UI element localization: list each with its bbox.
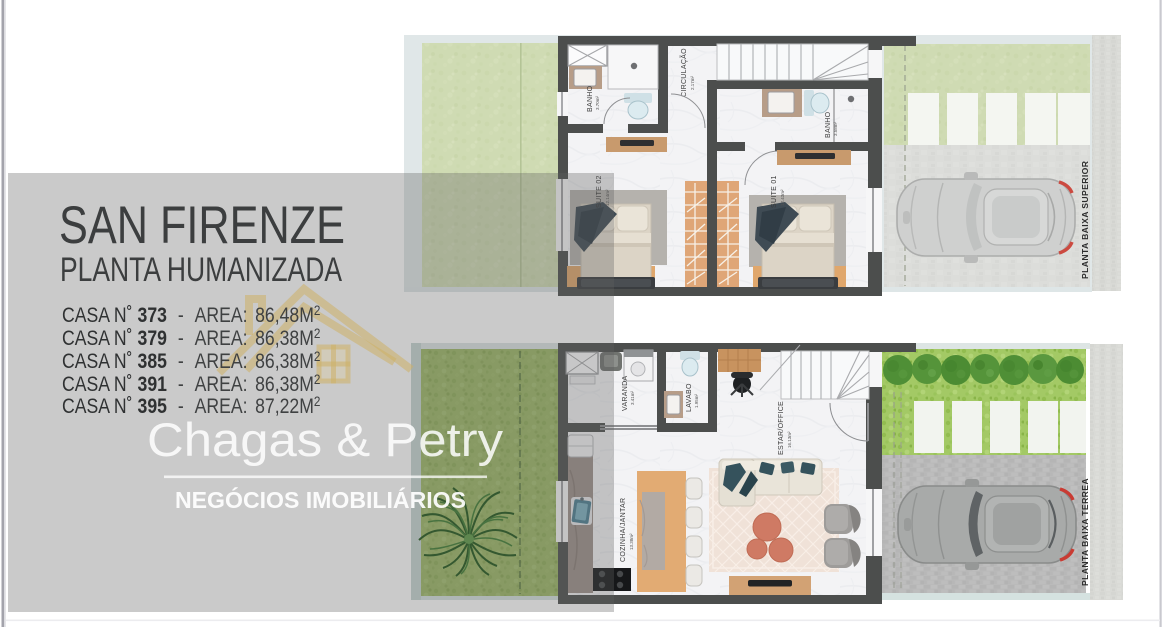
- svg-text:SUITE 01: SUITE 01: [771, 175, 778, 208]
- svg-text:1.95m²: 1.95m²: [694, 393, 699, 408]
- svg-text:SAN FIRENZE: SAN FIRENZE: [59, 196, 345, 255]
- svg-text:BANHO: BANHO: [587, 85, 594, 112]
- svg-text:3.58m²: 3.58m²: [833, 121, 838, 136]
- svg-text:BANHO: BANHO: [825, 111, 832, 138]
- svg-text:2.17m²: 2.17m²: [690, 75, 695, 90]
- svg-text:CIRCULAÇÃO: CIRCULAÇÃO: [679, 48, 688, 97]
- svg-text:ESTAR/OFFICE: ESTAR/OFFICE: [778, 401, 785, 455]
- svg-text:NEGÓCIOS IMOBILIÁRIOS: NEGÓCIOS IMOBILIÁRIOS: [175, 486, 466, 513]
- svg-text:3.41m²: 3.41m²: [630, 390, 635, 405]
- svg-text:VARANDA: VARANDA: [622, 376, 629, 411]
- svg-text:PLANTA BAIXA TERREA: PLANTA BAIXA TERREA: [1080, 478, 1090, 586]
- svg-text:13.38m²: 13.38m²: [629, 533, 634, 550]
- svg-text:LAVABO: LAVABO: [686, 383, 693, 412]
- svg-text:PLANTA HUMANIZADA: PLANTA HUMANIZADA: [60, 251, 342, 289]
- svg-text:PLANTA BAIXA SUPERIOR: PLANTA BAIXA SUPERIOR: [1080, 160, 1090, 279]
- svg-text:3.70m²: 3.70m²: [595, 95, 600, 110]
- svg-text:Chagas & Petry: Chagas & Petry: [147, 413, 504, 466]
- svg-text:12.43m²: 12.43m²: [780, 189, 785, 206]
- svg-text:16.13m²: 16.13m²: [787, 431, 792, 448]
- svg-text:COZINHA/JANTAR: COZINHA/JANTAR: [620, 498, 627, 562]
